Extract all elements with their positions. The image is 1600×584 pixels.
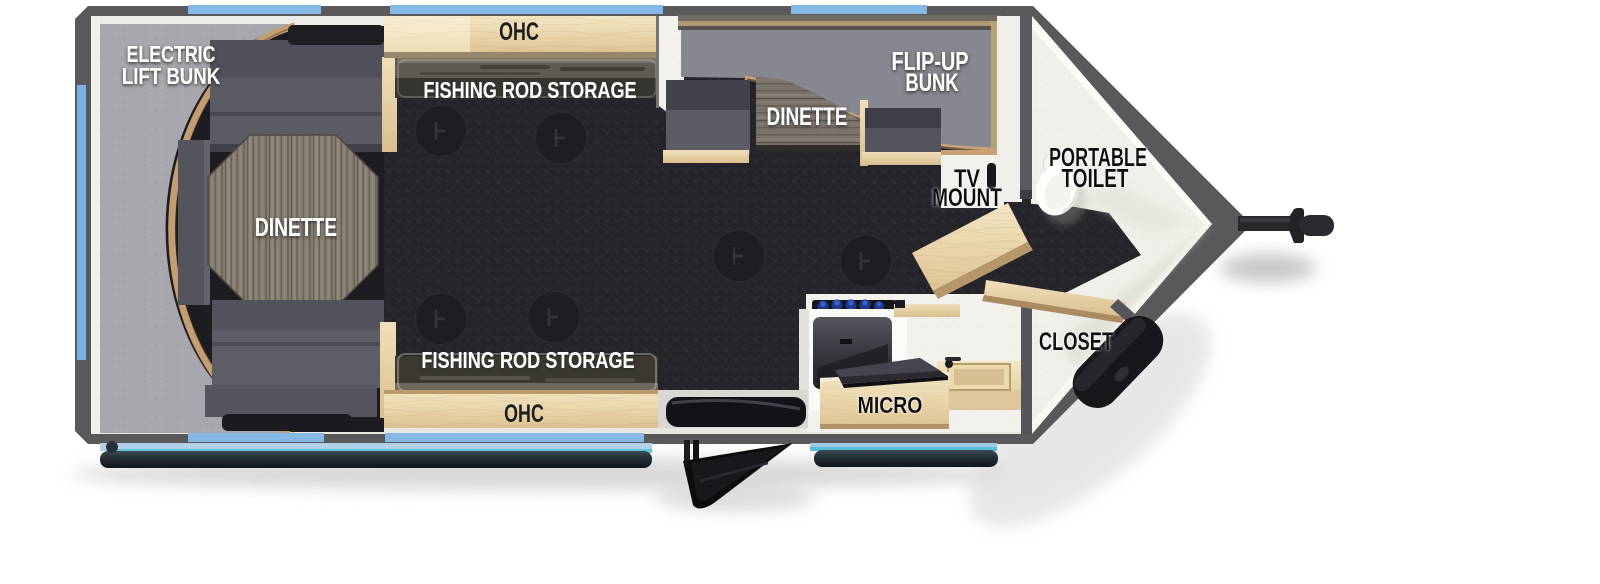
svg-text:DINETTE: DINETTE (767, 102, 848, 130)
svg-text:MICRO: MICRO (858, 392, 923, 418)
svg-text:OHC: OHC (504, 399, 544, 428)
svg-text:BUNK: BUNK (905, 68, 958, 96)
svg-text:CLOSET: CLOSET (1039, 327, 1114, 356)
svg-text:OHC: OHC (499, 17, 539, 46)
svg-text:LIFT BUNK: LIFT BUNK (122, 64, 220, 89)
svg-text:MOUNT: MOUNT (932, 183, 1002, 211)
svg-text:FISHING ROD STORAGE: FISHING ROD STORAGE (423, 78, 636, 104)
svg-text:DINETTE: DINETTE (255, 212, 337, 242)
svg-text:TOILET: TOILET (1062, 163, 1129, 193)
svg-text:FISHING ROD STORAGE: FISHING ROD STORAGE (421, 348, 634, 374)
